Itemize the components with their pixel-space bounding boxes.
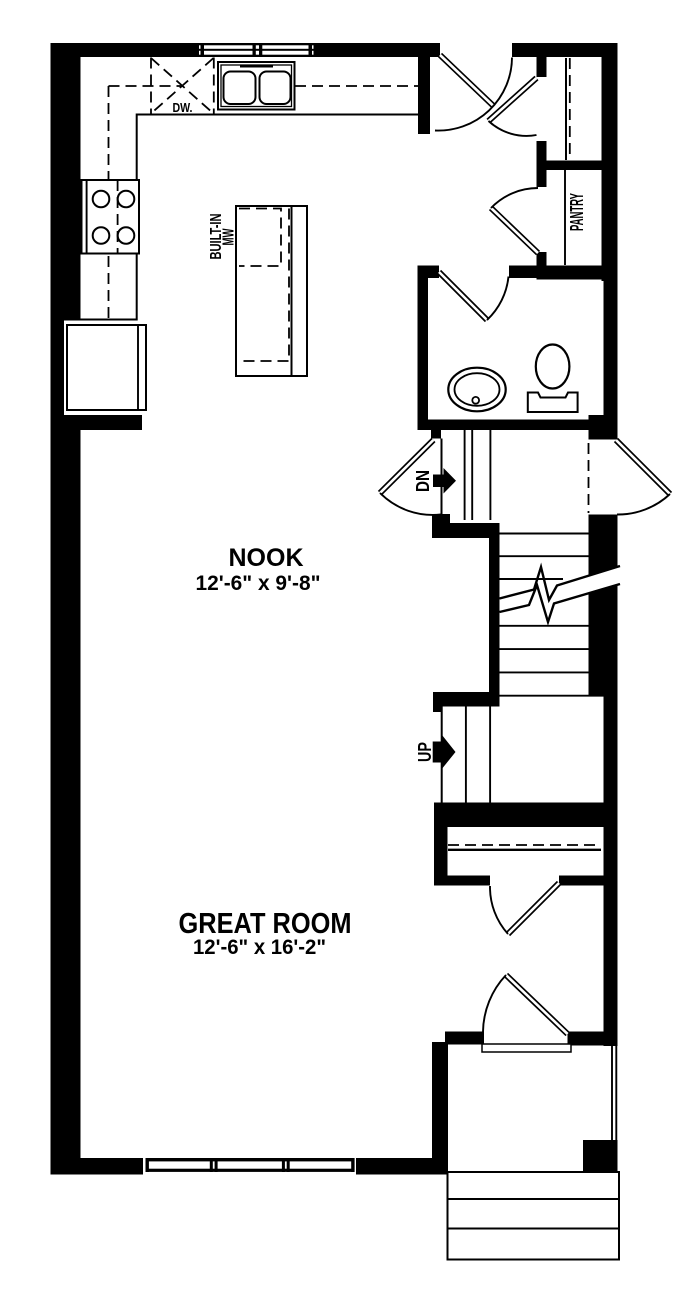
svg-text:UP: UP bbox=[415, 742, 435, 762]
svg-text:12'-6" x 9'-8": 12'-6" x 9'-8" bbox=[196, 572, 321, 595]
svg-text:NOOK: NOOK bbox=[229, 544, 304, 572]
svg-text:12'-6" x 16'-2": 12'-6" x 16'-2" bbox=[193, 936, 326, 959]
svg-text:DN: DN bbox=[413, 470, 433, 492]
svg-text:PANTRY: PANTRY bbox=[566, 193, 587, 231]
svg-text:DW.: DW. bbox=[173, 101, 193, 115]
svg-text:MW: MW bbox=[221, 228, 238, 245]
